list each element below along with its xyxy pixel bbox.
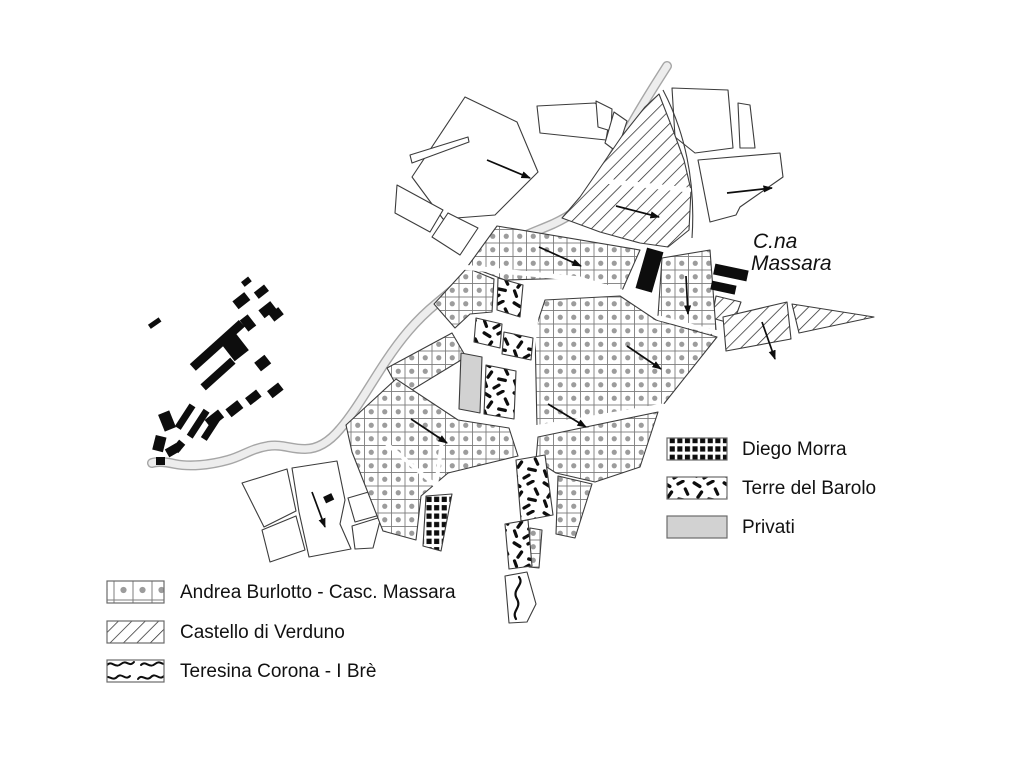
checker-parcel [423,494,452,551]
dotted-parcel [556,476,592,538]
dotted-parcel [434,268,494,328]
building [710,281,736,295]
parcel [738,103,755,148]
parcel [412,97,538,219]
parcel [672,88,733,153]
place-label-line1: C.na [753,230,797,253]
building [713,264,749,282]
map-svg: C.na Massara Diego Morra Terre del Barol… [0,0,1024,768]
legend-label: Castello di Verduno [180,622,345,643]
dashes-parcel [474,318,502,348]
hatched-parcel [792,304,874,333]
legend-label: Teresina Corona - I Brè [180,661,376,682]
teresina-corona-parcel [505,572,536,623]
vineyard-parcel-map: C.na Massara Diego Morra Terre del Barol… [0,0,1024,768]
village-buildings [148,277,284,465]
privati-parcel [459,353,482,413]
legend-label: Privati [742,517,795,538]
legend-label: Diego Morra [742,439,847,460]
gray-parcel [459,353,482,413]
parcel [432,213,478,255]
place-label: C.na Massara [751,230,832,275]
dashes-parcel [484,365,516,419]
legend-label: Terre del Barolo [742,478,876,499]
dashes-parcel [497,278,523,317]
legend-swatch-terre-del-barolo [667,477,727,499]
parcel [242,469,296,527]
legend-swatch-castello-di-verduno [107,621,164,643]
legend-swatch-privati [667,516,727,538]
dashes-parcel [505,520,532,569]
building [636,248,664,293]
legend-right: Diego Morra Terre del Barolo Privati [667,438,876,538]
legend-left: Andrea Burlotto - Casc. Massara Castello… [107,581,456,682]
legend-swatch-andrea-burlotto [107,581,164,603]
legend-swatch-diego-morra [667,438,727,460]
place-label-line2: Massara [751,252,832,275]
legend-swatch-teresina-corona [107,660,164,682]
legend-label: Andrea Burlotto - Casc. Massara [180,582,456,603]
dashes-parcel [502,332,533,360]
diego-morra-parcel [423,494,452,551]
